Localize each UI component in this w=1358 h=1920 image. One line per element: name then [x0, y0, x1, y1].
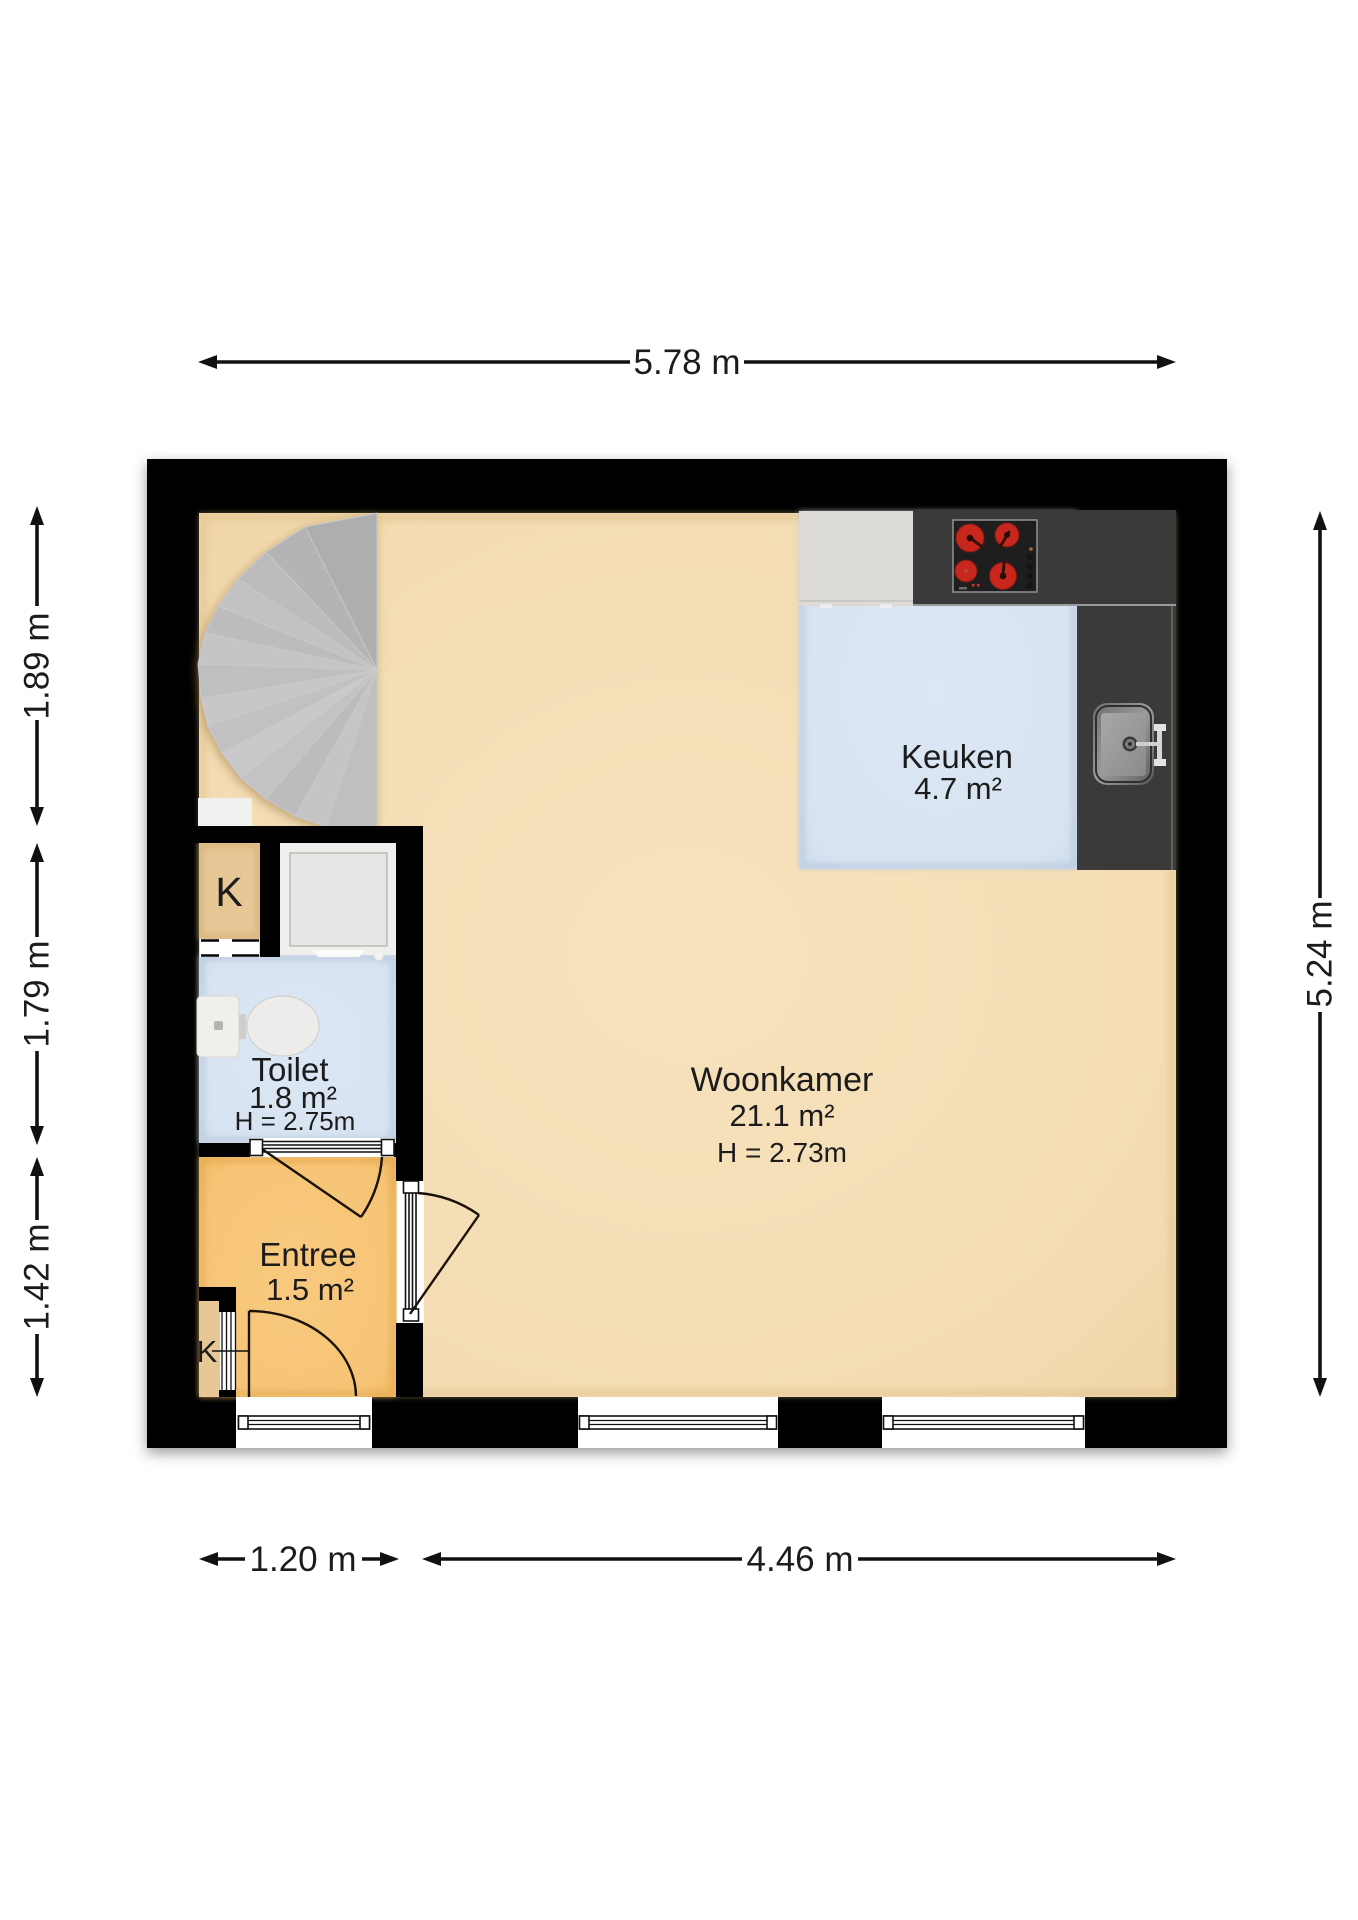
svg-text:1.89 m: 1.89 m	[18, 613, 57, 720]
svg-text:1.42 m: 1.42 m	[18, 1224, 57, 1331]
svg-text:5.24 m: 5.24 m	[1301, 901, 1340, 1008]
svg-text:4.7 m²: 4.7 m²	[914, 771, 1002, 806]
svg-text:1.20 m: 1.20 m	[250, 1540, 357, 1579]
svg-text:1.79 m: 1.79 m	[18, 941, 57, 1048]
svg-text:H = 2.75m: H = 2.75m	[235, 1106, 356, 1136]
svg-text:4.46 m: 4.46 m	[747, 1540, 854, 1579]
svg-text:21.1 m²: 21.1 m²	[729, 1098, 834, 1133]
svg-text:K: K	[215, 869, 242, 915]
svg-text:K: K	[197, 1334, 218, 1369]
svg-text:H = 2.73m: H = 2.73m	[717, 1137, 847, 1168]
svg-text:1.5 m²: 1.5 m²	[266, 1272, 354, 1307]
svg-text:Woonkamer: Woonkamer	[691, 1061, 874, 1099]
svg-text:Entree: Entree	[259, 1236, 356, 1273]
svg-text:5.78 m: 5.78 m	[634, 343, 741, 382]
svg-text:Keuken: Keuken	[901, 738, 1013, 775]
